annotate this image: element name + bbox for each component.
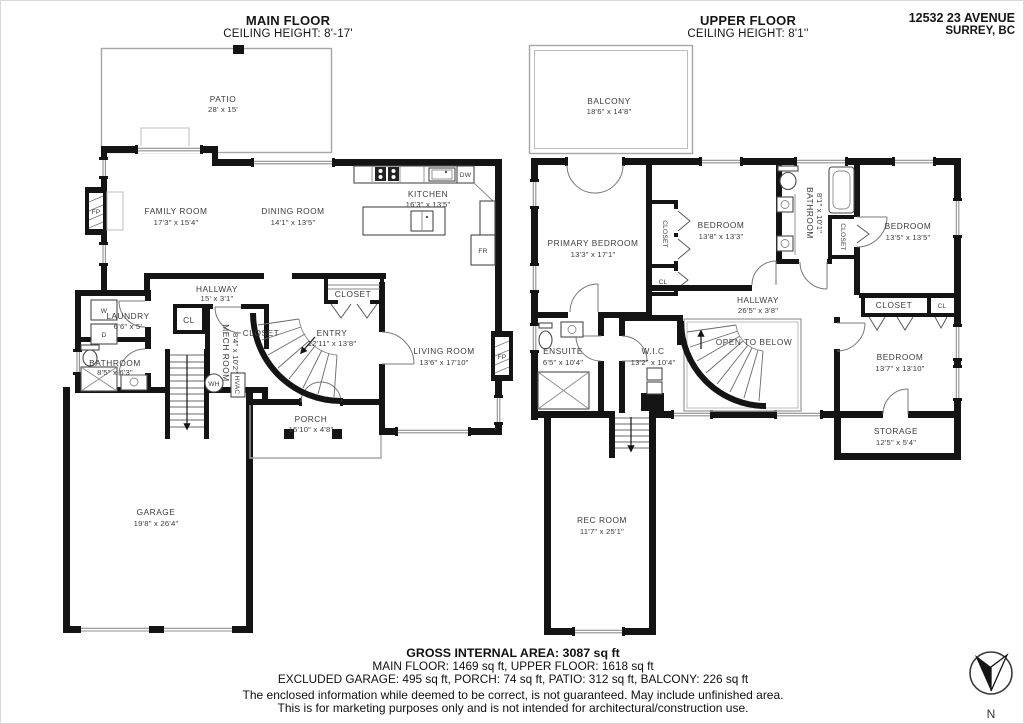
balcony-door <box>565 157 625 193</box>
bedroom-dims: 13'5" x 13'5" <box>886 233 931 242</box>
fp-label: FP <box>498 354 507 361</box>
hvac-label: HVAC <box>233 376 240 395</box>
compass-north-label: N <box>987 707 996 721</box>
bathtub-icon <box>829 167 854 213</box>
bedroom-dims: 13'7" x 13'10" <box>875 364 924 373</box>
window <box>794 157 848 166</box>
window <box>530 263 539 293</box>
window <box>251 158 335 167</box>
window <box>530 323 539 353</box>
cl-label: CL <box>938 303 947 310</box>
bedroom-door <box>837 323 865 351</box>
window <box>530 179 539 209</box>
floor-plan-drawing: PATIO 28' x 15' FAMILY ROOM 17'3" x 15'4… <box>1 1 1023 723</box>
window <box>953 365 962 401</box>
mech-room-dims: 8'4" x 10'2" <box>231 333 240 373</box>
upper-hallway-dims: 26'5" x 3'8" <box>738 306 778 315</box>
balcony-dims: 18'6" x 14'8" <box>587 107 632 116</box>
ensuite-label: ENSUITE <box>543 346 583 356</box>
curved-stair-wall <box>681 321 766 406</box>
compass-icon: N <box>970 652 1012 721</box>
family-room-dims: 17'3" x 15'4" <box>154 218 199 227</box>
upper-hallway-label: HALLWAY <box>737 295 779 305</box>
bath-sink-icon <box>561 322 583 337</box>
stairs-straight <box>165 349 209 439</box>
cl-label: CL <box>183 315 195 325</box>
upper-floor-plan: BALCONY 18'6" x 14'8" PRIMARY BEDROOM 13… <box>530 46 963 637</box>
bath-sink-icon <box>777 197 793 212</box>
wic-shelves <box>647 368 662 394</box>
closet-label: CLOSET <box>661 220 668 248</box>
dryer-label: D <box>102 332 107 339</box>
excluded-areas-text: EXCLUDED GARAGE: 495 sq ft, PORCH: 74 sq… <box>278 672 748 686</box>
garage-dims: 19'8" x 26'4" <box>134 519 179 528</box>
window <box>699 157 743 166</box>
mech-room-label: MECH ROOM <box>221 324 231 382</box>
hallway-label: HALLWAY <box>196 284 238 294</box>
dining-room-label: DINING ROOM <box>261 206 324 216</box>
fp-label: FP <box>92 209 101 216</box>
entry-label: ENTRY <box>317 328 348 338</box>
window <box>953 324 962 361</box>
primary-bedroom-label: PRIMARY BEDROOM <box>548 238 639 248</box>
window <box>953 198 962 238</box>
closet-entry-label: CLOSET <box>335 289 372 299</box>
floor-plan-page: MAIN FLOOR CEILING HEIGHT: 8'-17' UPPER … <box>0 0 1024 724</box>
bedroom-label: BEDROOM <box>877 352 924 362</box>
bedroom-dims: 13'8" x 13'3" <box>699 232 744 241</box>
balcony-label: BALCONY <box>587 96 631 106</box>
hallway-dims: 15' x 3'1" <box>201 294 234 303</box>
primary-bedroom-dims: 13'3" x 17'1" <box>571 250 616 259</box>
sink-icon <box>429 168 455 181</box>
floor-areas-text: MAIN FLOOR: 1469 sq ft, UPPER FLOOR: 161… <box>372 659 653 673</box>
closet-label: CLOSET <box>876 300 913 310</box>
family-room-label: FAMILY ROOM <box>145 206 208 216</box>
ensuite-dims: 6'5" x 10'4" <box>543 358 583 367</box>
gross-area-text: GROSS INTERNAL AREA: 3087 sq ft <box>406 646 619 660</box>
bathroom-label: BATHROOM <box>89 358 141 368</box>
fr-label: FR <box>478 248 487 255</box>
wic-dims: 13'2" x 10'4" <box>631 358 676 367</box>
living-room-dims: 13'6" x 17'10" <box>419 358 468 367</box>
cl-label: CL <box>659 279 668 286</box>
rec-room-label: REC ROOM <box>577 515 627 525</box>
bathroom-dims: 8'5" x 6'3" <box>97 368 133 377</box>
toilet-icon <box>778 166 798 190</box>
laundry-dims: 6'6" x 5' <box>114 322 143 331</box>
disclaimer-line2: This is for marketing purposes only and … <box>278 701 749 715</box>
kitchen-label: KITCHEN <box>408 189 448 199</box>
bedroom-label: BEDROOM <box>885 221 932 231</box>
porch-label: PORCH <box>295 414 328 424</box>
shower-icon <box>538 372 589 409</box>
window <box>892 157 936 166</box>
upper-bathroom-label: BATHROOM <box>805 187 815 239</box>
closet-label: CLOSET <box>839 223 846 251</box>
bedroom-label: BEDROOM <box>698 220 745 230</box>
patio-dims: 28' x 15' <box>208 105 238 114</box>
window <box>99 242 108 266</box>
kitchen-island <box>363 207 445 235</box>
closet-understair-label: CLOSET <box>243 328 280 338</box>
window <box>395 427 471 436</box>
garage-label: GARAGE <box>137 507 176 517</box>
wh-label: WH <box>208 381 219 388</box>
disclaimer-line1: The enclosed information while deemed to… <box>243 688 784 702</box>
bath-sink-icon <box>777 236 793 251</box>
open-to-below-label: OPEN TO BELOW <box>716 337 792 347</box>
window <box>135 145 203 154</box>
laundry-label: LAUNDRY <box>106 311 149 321</box>
bath-sink-icon <box>121 375 147 390</box>
upper-bathroom-dims: 8'1" x 10'1" <box>815 193 824 233</box>
stairs-rec <box>609 411 649 458</box>
storage-door <box>883 389 908 418</box>
closet-row-walls <box>861 293 961 330</box>
window <box>572 627 625 636</box>
living-room-label: LIVING ROOM <box>413 346 474 356</box>
washer-label: W <box>101 308 108 315</box>
storage-label: STORAGE <box>874 426 918 436</box>
main-floor-plan: PATIO 28' x 15' FAMILY ROOM 17'3" x 15'4… <box>63 45 513 633</box>
porch-dims: 15'10" x 4'8" <box>289 425 334 434</box>
bathroom-door <box>799 259 827 289</box>
entry-dims: 12'11" x 13'8" <box>308 339 357 348</box>
rec-room-dims: 11'7" x 25'1" <box>580 527 624 536</box>
kitchen-dims: 16'3" x 13'5" <box>406 200 451 209</box>
dining-room-dims: 14'1" x 13'5" <box>271 218 316 227</box>
window <box>494 395 503 425</box>
wic-label: W.I.C <box>641 346 664 356</box>
patio-label: PATIO <box>210 94 236 104</box>
storage-dims: 12'5" x 5'4" <box>876 438 916 447</box>
window <box>99 157 108 179</box>
dw-label: DW <box>460 172 472 179</box>
